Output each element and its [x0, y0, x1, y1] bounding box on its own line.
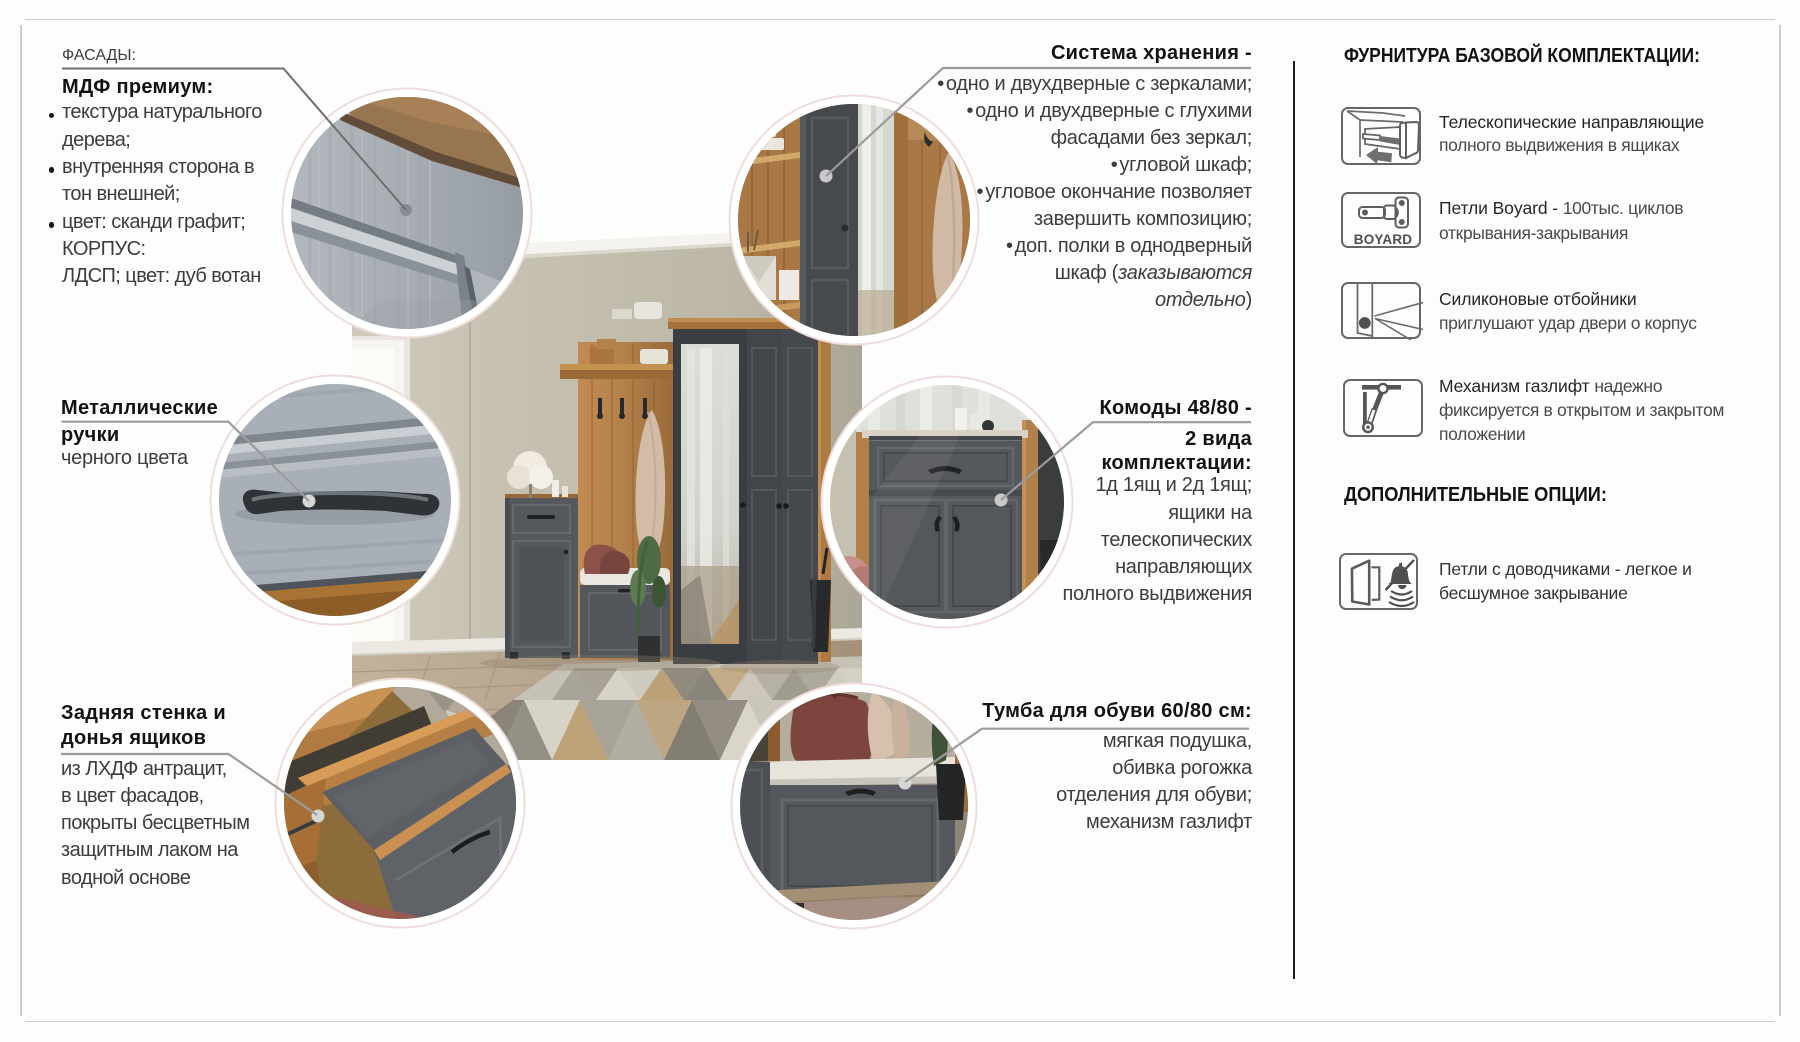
svg-text:BOYARD: BOYARD — [1354, 232, 1413, 247]
